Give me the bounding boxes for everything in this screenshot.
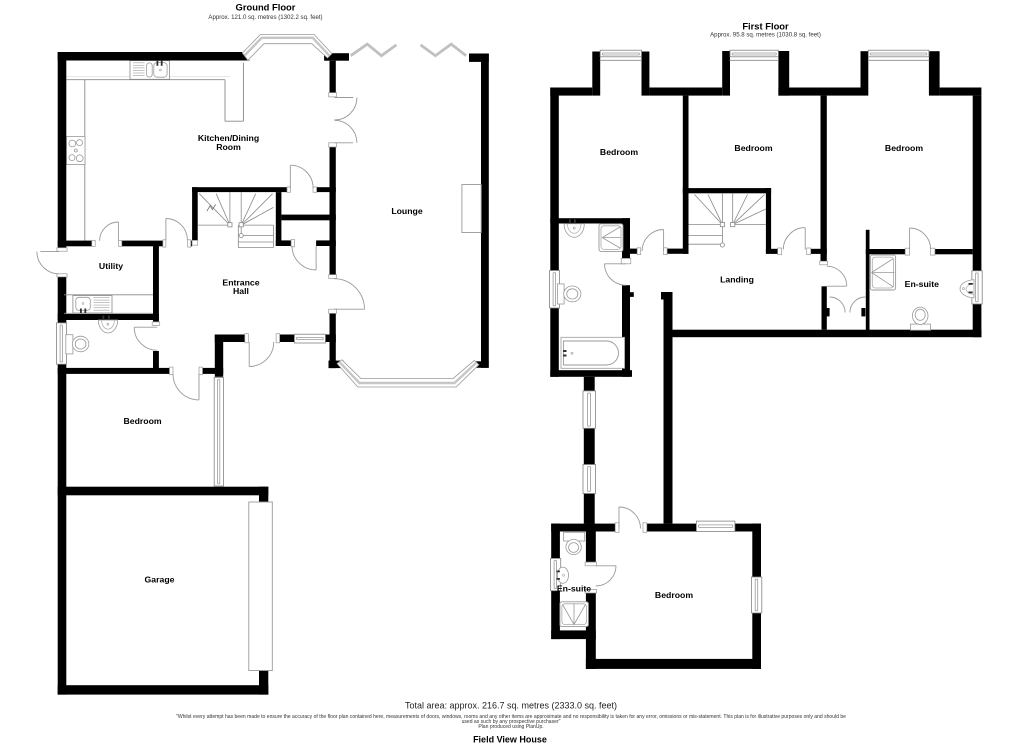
svg-text:Hall: Hall — [233, 286, 249, 296]
svg-text:En-suite: En-suite — [905, 279, 939, 289]
svg-text:Bedroom: Bedroom — [655, 590, 693, 600]
svg-text:Utility: Utility — [99, 261, 123, 271]
svg-text:Approx. 121.0 sq. metres (1302: Approx. 121.0 sq. metres (1302.2 sq. fee… — [208, 14, 322, 21]
svg-text:Ground Floor: Ground Floor — [236, 1, 296, 12]
svg-text:Room: Room — [216, 142, 241, 152]
svg-text:Lounge: Lounge — [391, 206, 423, 216]
svg-text:Field View House: Field View House — [473, 735, 547, 745]
svg-text:Plan produced using PlanUp.: Plan produced using PlanUp. — [478, 724, 543, 730]
svg-text:Bedroom: Bedroom — [600, 147, 638, 157]
svg-text:En-suite: En-suite — [557, 584, 591, 594]
svg-text:Garage: Garage — [145, 575, 175, 585]
svg-text:Total area: approx. 216.7 sq.: Total area: approx. 216.7 sq. metres (23… — [405, 701, 617, 711]
svg-text:Bedroom: Bedroom — [734, 143, 772, 153]
svg-text:Approx. 95.8 sq. metres (1030.: Approx. 95.8 sq. metres (1030.8 sq. feet… — [710, 31, 821, 38]
svg-text:Landing: Landing — [720, 275, 754, 285]
svg-text:Bedroom: Bedroom — [124, 416, 162, 426]
svg-text:Bedroom: Bedroom — [885, 143, 923, 153]
svg-text:First Floor: First Floor — [742, 20, 789, 31]
